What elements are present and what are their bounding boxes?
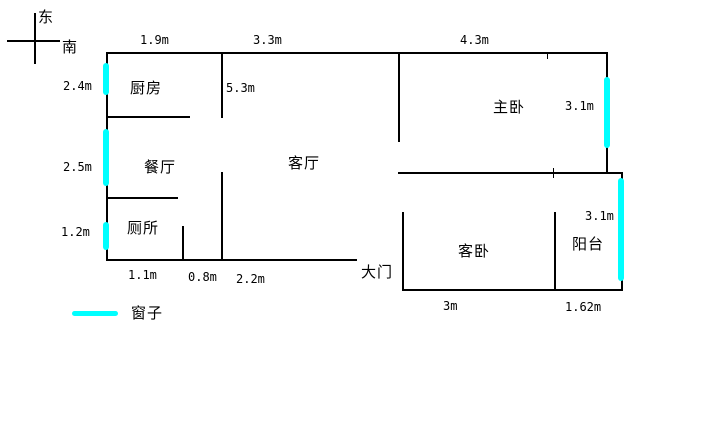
room-label-master-bedroom: 主卧 <box>493 99 525 115</box>
dim-left-dining: 2.5m <box>63 161 92 174</box>
dim-top-master: 4.3m <box>460 34 489 47</box>
dim-bottom-gap: 0.8m <box>188 271 217 284</box>
dim-bottom-guest: 3m <box>443 300 457 313</box>
window-dining <box>103 129 109 186</box>
dim-kitchen-wall: 5.3m <box>226 82 255 95</box>
tick-top-wall <box>547 52 548 59</box>
wall-toilet-top <box>106 197 178 199</box>
room-label-guest-bedroom: 客卧 <box>458 243 490 259</box>
tick-corridor-wall <box>553 168 554 178</box>
wall-top <box>106 52 608 54</box>
dim-top-living: 3.3m <box>253 34 282 47</box>
dim-bottom-balcony: 1.62m <box>565 301 601 314</box>
wall-living-bottom <box>106 259 357 261</box>
window-kitchen <box>103 63 109 95</box>
main-door-label: 大门 <box>361 264 393 280</box>
wall-kitchen-bottom <box>106 116 190 118</box>
wall-bottom-right <box>403 289 623 291</box>
window-balcony <box>618 178 624 281</box>
room-label-living: 客厅 <box>288 155 320 171</box>
wall-toilet-right <box>182 226 184 261</box>
room-label-dining: 餐厅 <box>144 159 176 175</box>
compass-horizontal-line <box>7 40 60 42</box>
wall-guest-balcony-divider <box>554 212 556 291</box>
compass-south-label: 南 <box>62 39 78 55</box>
compass-vertical-line <box>34 13 36 64</box>
dim-master-window: 3.1m <box>565 100 594 113</box>
wall-guest-left <box>402 212 404 291</box>
dim-bottom-toilet: 1.1m <box>128 269 157 282</box>
room-label-toilet: 厕所 <box>127 220 159 236</box>
window-master <box>604 77 610 148</box>
wall-corridor-top <box>398 172 623 174</box>
legend-window-label: 窗子 <box>131 305 163 321</box>
dim-balcony-window: 3.1m <box>585 210 614 223</box>
room-label-balcony: 阳台 <box>572 236 604 252</box>
floor-plan-canvas: 东 南 1.9m 3.3m 4.3m 2.4m 5.3m 2.5m 1.2m 1… <box>0 0 701 425</box>
dim-left-kitchen: 2.4m <box>63 80 92 93</box>
wall-living-right-upper <box>398 52 400 142</box>
dim-bottom-living: 2.2m <box>236 273 265 286</box>
dim-left-toilet: 1.2m <box>61 226 90 239</box>
wall-kitchen-right-upper <box>221 52 223 118</box>
wall-dining-right-lower <box>221 172 223 261</box>
compass-east-label: 东 <box>38 9 54 25</box>
room-label-kitchen: 厨房 <box>130 80 162 96</box>
dim-top-kitchen: 1.9m <box>140 34 169 47</box>
legend-window-swatch <box>72 311 118 316</box>
window-toilet <box>103 222 109 250</box>
